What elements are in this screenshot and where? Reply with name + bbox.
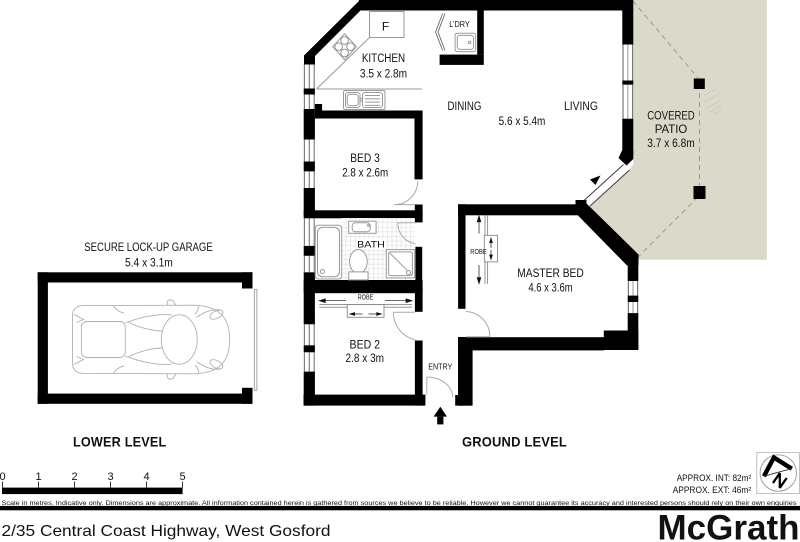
svg-text:2: 2 [72, 471, 78, 483]
svg-text:ROBE: ROBE [358, 295, 374, 302]
svg-text:2.8 x 2.6m: 2.8 x 2.6m [342, 168, 388, 180]
svg-text:3.7 x 6.8m: 3.7 x 6.8m [647, 138, 695, 150]
svg-text:BATH: BATH [357, 240, 385, 251]
svg-text:ROBE: ROBE [470, 249, 487, 256]
svg-text:0: 0 [0, 471, 6, 483]
svg-text:DINING: DINING [448, 101, 482, 113]
svg-text:3.5 x 2.8m: 3.5 x 2.8m [360, 69, 407, 81]
svg-text:5: 5 [180, 471, 186, 483]
svg-text:3: 3 [108, 471, 114, 483]
svg-text:BED 2: BED 2 [350, 340, 381, 352]
svg-text:MASTER BED: MASTER BED [517, 268, 583, 280]
svg-text:ENTRY: ENTRY [428, 361, 452, 371]
svg-text:KITCHEN: KITCHEN [362, 53, 405, 65]
svg-text:5.6 x 5.4m: 5.6 x 5.4m [499, 116, 546, 128]
svg-text:Scale in metres. Indicative on: Scale in metres. Indicative only. Dimens… [2, 500, 797, 507]
svg-text:LOWER LEVEL: LOWER LEVEL [73, 434, 167, 450]
svg-text:LIVING: LIVING [564, 101, 598, 113]
svg-text:2/35 Central Coast Highway, We: 2/35 Central Coast Highway, West Gosford [2, 523, 331, 540]
svg-text:2.8 x 3m: 2.8 x 3m [346, 353, 385, 365]
svg-text:4: 4 [144, 471, 150, 483]
svg-text:4.6 x 3.6m: 4.6 x 3.6m [528, 283, 572, 295]
svg-text:BED 3: BED 3 [350, 153, 380, 165]
svg-text:L’DRY: L’DRY [449, 19, 470, 29]
svg-text:APPROX. EXT: 46m²: APPROX. EXT: 46m² [673, 485, 752, 495]
svg-text:SECURE LOCK-UP GARAGE: SECURE LOCK-UP GARAGE [84, 242, 213, 254]
svg-text:PATIO: PATIO [655, 124, 688, 136]
svg-text:F: F [382, 20, 389, 34]
svg-text:COVERED: COVERED [647, 111, 695, 123]
svg-text:GROUND LEVEL: GROUND LEVEL [462, 434, 567, 450]
svg-text:APPROX. INT: 82m²: APPROX. INT: 82m² [677, 473, 752, 483]
svg-text:1: 1 [36, 471, 42, 483]
svg-text:5.4 x 3.1m: 5.4 x 3.1m [125, 258, 173, 270]
svg-text:McGrath: McGrath [658, 508, 800, 542]
